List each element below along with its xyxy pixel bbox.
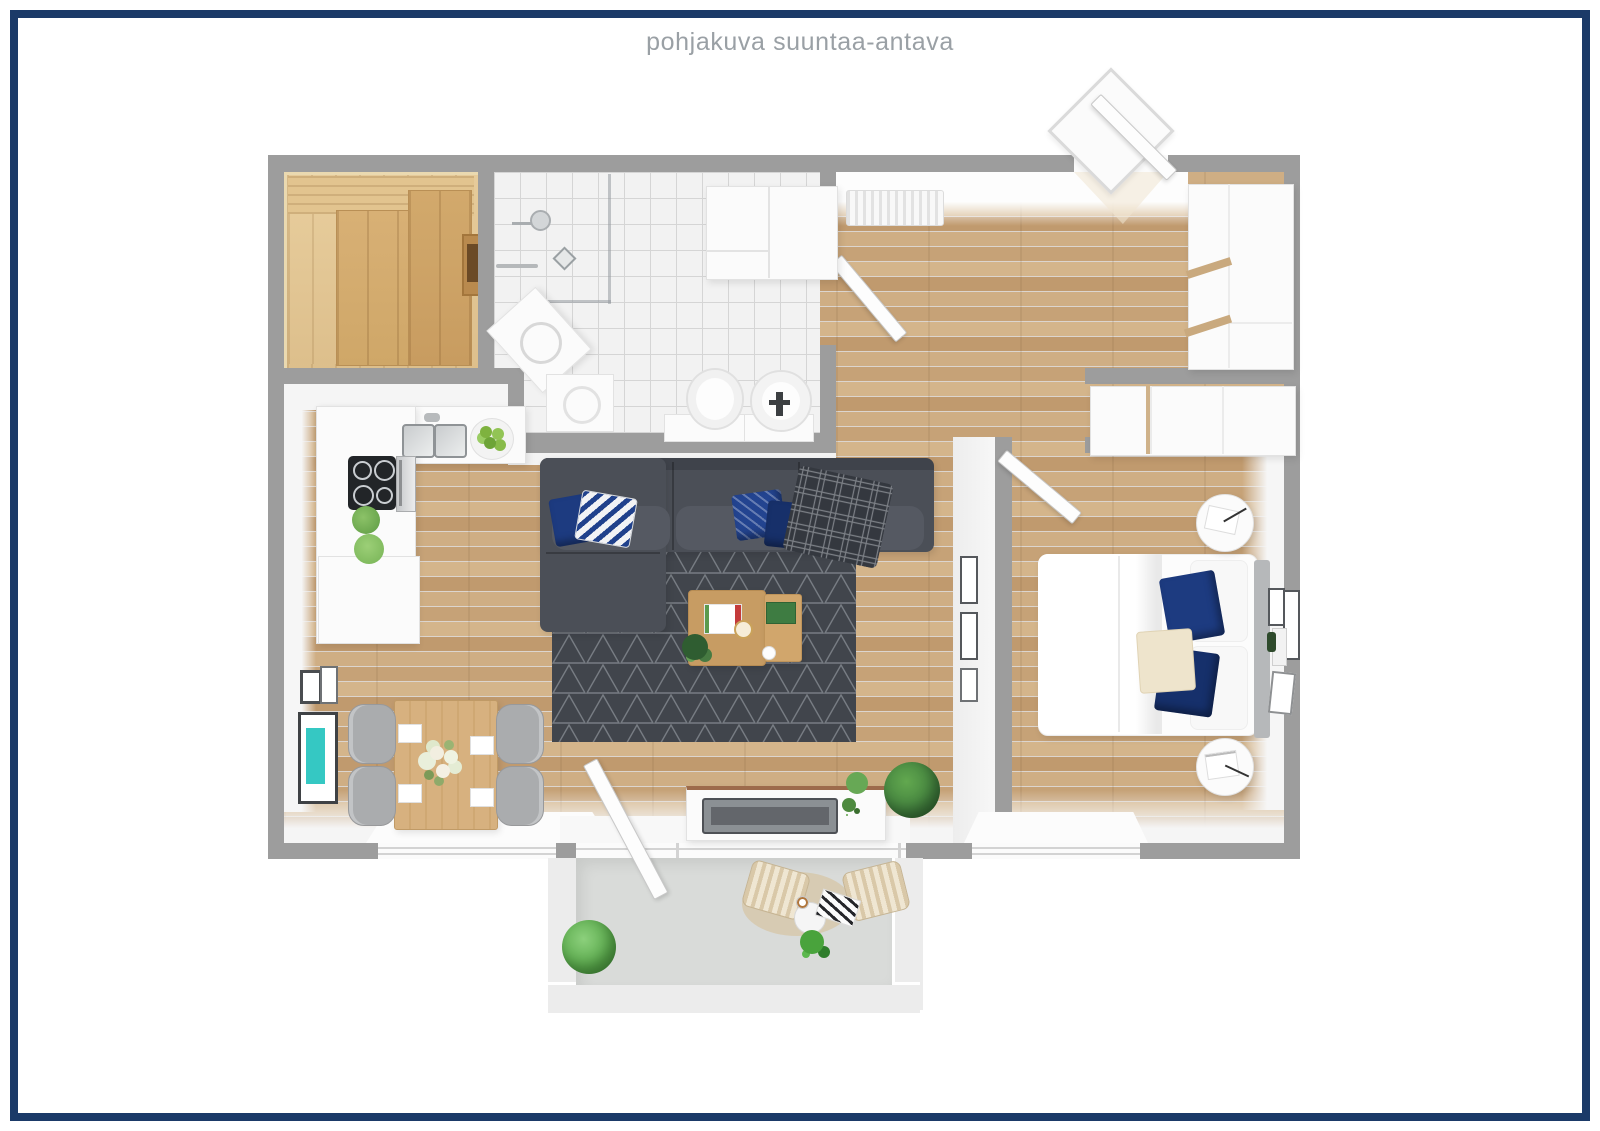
- flower-centerpiece: [430, 746, 444, 760]
- coffee-table-plant: [682, 634, 708, 660]
- hall-radiator: [846, 190, 944, 226]
- wall-picture-frame-1: [960, 556, 978, 604]
- balcony-plant-small: [800, 930, 824, 954]
- sauna-side-planks: [288, 214, 336, 364]
- place-setting-3: [470, 736, 494, 755]
- tv-flat: [702, 798, 838, 834]
- bathroom-cabinet: [706, 186, 838, 280]
- sofa-pillow-chevron: [574, 490, 638, 549]
- hall-wardrobe-shelf-line: [1230, 322, 1292, 324]
- kitchen-sink-left: [402, 424, 435, 458]
- coffee-cup-1: [734, 620, 753, 639]
- dining-table: [394, 700, 498, 830]
- bedroom-window: [972, 843, 1140, 859]
- dining-window-frame2: [378, 853, 556, 855]
- living-plant-small: [846, 772, 868, 794]
- place-setting-1: [398, 724, 422, 743]
- dining-chair-1: [348, 704, 396, 764]
- hall-wardrobe-divider: [1228, 184, 1230, 368]
- floor-plan-page: pohjakuva suuntaa-antava: [0, 0, 1600, 1131]
- dining-art-frame-1: [300, 670, 322, 704]
- bedroom-console-plant: [1267, 632, 1276, 652]
- bedroom-closet-divider-2: [1222, 386, 1224, 454]
- sofa-seam-1: [672, 462, 674, 550]
- balcony-coffee-cup: [796, 896, 809, 909]
- dining-art-frame-2: [320, 666, 338, 704]
- bedroom-closet-divider-1: [1150, 386, 1152, 454]
- dining-chair-2: [348, 766, 396, 826]
- hall-wardrobe: [1188, 184, 1294, 370]
- dryer-door: [563, 386, 601, 424]
- wall-picture-frame-2: [960, 612, 978, 660]
- balcony-glass-mullion-1: [676, 843, 679, 859]
- dining-window-frame: [378, 847, 556, 849]
- wall-picture-frame-3: [960, 668, 978, 702]
- bathroom-cabinet-divider: [768, 186, 770, 278]
- bedroom-window-frame: [972, 847, 1140, 849]
- shower-glass-panel: [608, 174, 611, 304]
- dining-art-teal-print: [306, 726, 325, 784]
- bedroom-frame-3: [1268, 671, 1296, 715]
- bedroom-closet: [1090, 386, 1296, 456]
- sauna-bench-upper: [336, 210, 412, 366]
- kitchen-sink-right: [434, 424, 467, 458]
- coffee-table-green-book: [766, 602, 796, 624]
- oven-handle: [399, 460, 402, 506]
- bedroom-living-wall: [995, 437, 1012, 843]
- fruit-bowl: [470, 418, 514, 460]
- balcony-plant-bush: [562, 920, 616, 974]
- dining-chair-3: [496, 704, 544, 764]
- bedroom-window-frame2: [972, 853, 1140, 855]
- bedroom-closet-trim: [1146, 386, 1150, 454]
- bathroom-cabinet-shelf: [706, 250, 768, 252]
- hall-bedroom-wall: [1085, 368, 1284, 384]
- cooktop-burner-2: [374, 460, 395, 481]
- sauna-kitchen-wall: [268, 368, 524, 384]
- coffee-cup-2: [762, 646, 776, 660]
- cooktop-burner-4: [376, 487, 393, 504]
- place-setting-2: [398, 784, 422, 803]
- bathroom-right-wall-lower: [820, 345, 836, 453]
- sauna-bathroom-wall: [478, 172, 494, 368]
- sofa-chaise-seam: [546, 552, 660, 554]
- balcony-glass-mullion-2: [898, 843, 901, 859]
- cooktop-burner-1: [353, 461, 372, 480]
- kitchen-lower-cabinet: [318, 556, 420, 644]
- tv-bench-decor-plant: [842, 798, 856, 812]
- shower-head: [530, 210, 551, 231]
- bedroom-window-sill: [964, 812, 1148, 843]
- cooktop-burner-3: [353, 485, 374, 506]
- balcony-glass-frame: [576, 848, 906, 850]
- herb-plant-2: [354, 534, 384, 564]
- living-plant-pot: [884, 762, 940, 818]
- toilet-bowl: [686, 368, 744, 430]
- nightstand-bottom-book: [1204, 750, 1239, 780]
- place-setting-4: [470, 788, 494, 807]
- dining-window: [378, 843, 556, 859]
- outer-wall-left: [268, 155, 284, 859]
- herb-plant-1: [352, 506, 380, 534]
- fruit-apples: [480, 426, 492, 438]
- floor-plan: [0, 0, 1600, 1131]
- bed-throw-blanket: [1136, 628, 1196, 694]
- dining-chair-4: [496, 766, 544, 826]
- balcony-wall-bottom: [548, 982, 920, 1013]
- bed-duvet-fold: [1118, 556, 1120, 732]
- towel-bar: [496, 264, 538, 268]
- sink-faucet-handles: [769, 400, 790, 405]
- kitchen-faucet: [424, 413, 440, 422]
